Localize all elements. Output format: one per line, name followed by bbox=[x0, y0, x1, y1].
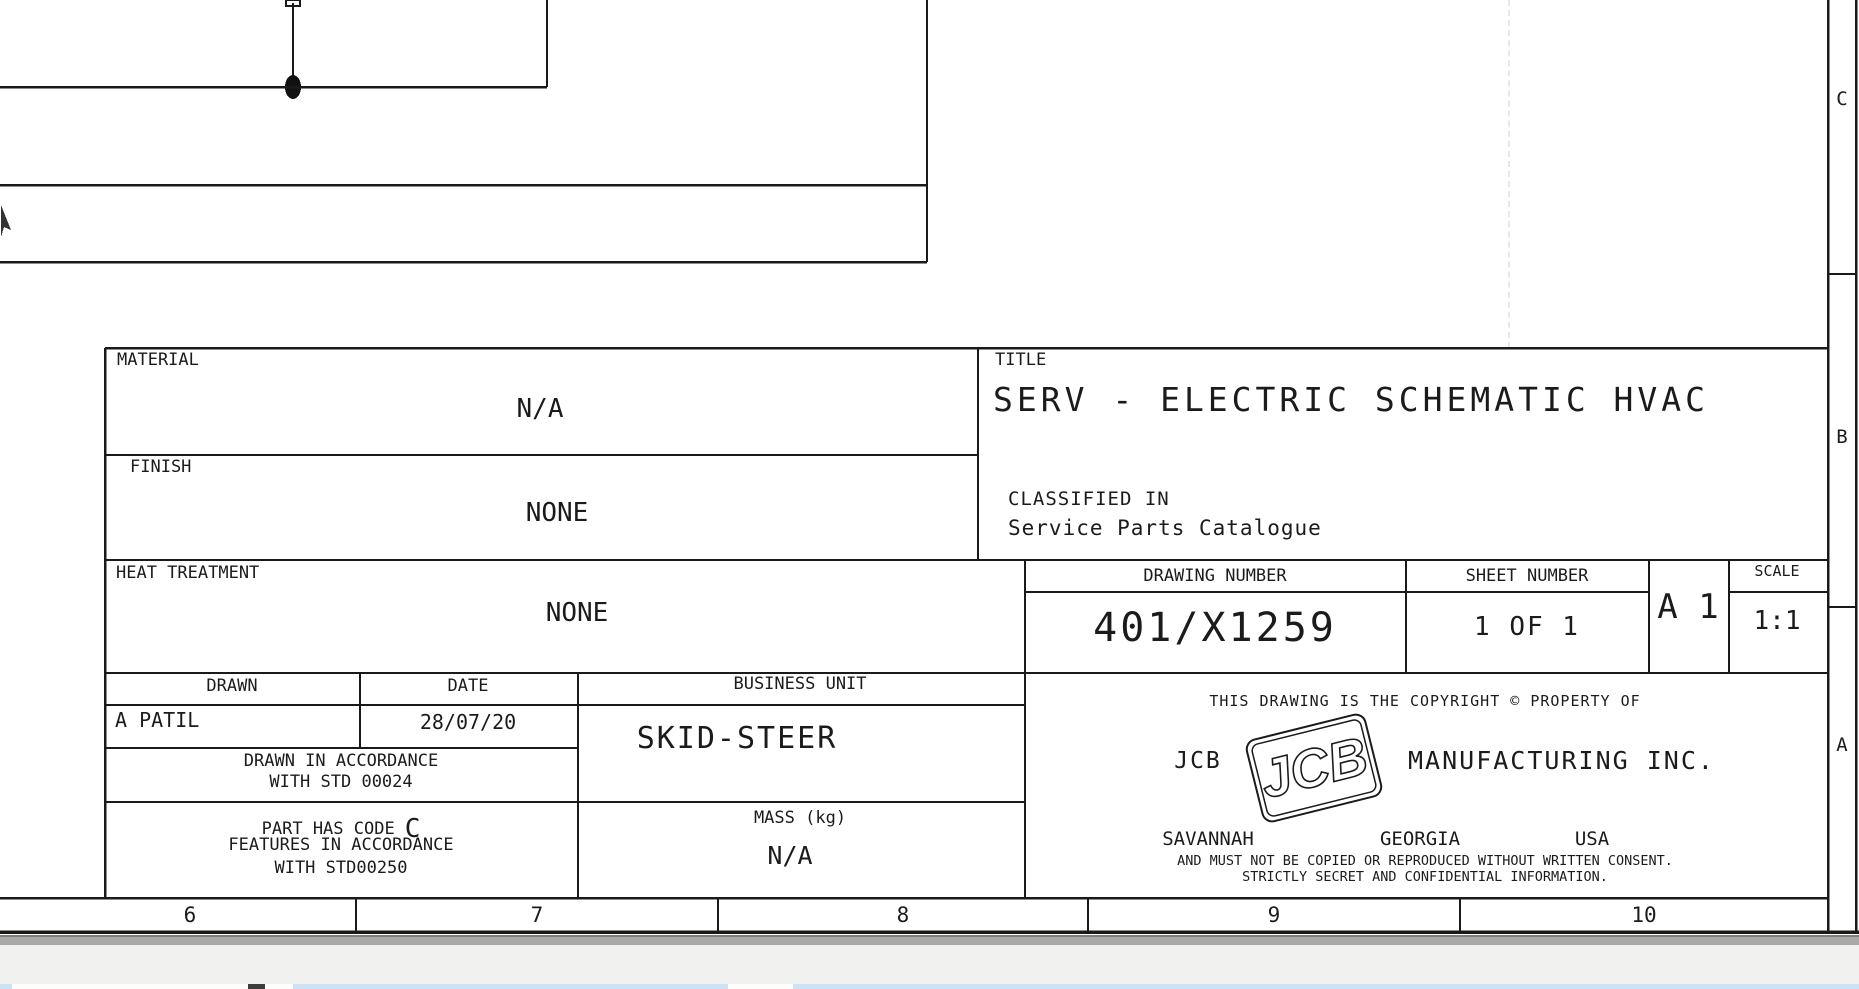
part-code-line3: WITH STD00250 bbox=[274, 860, 407, 877]
heat-treatment-label: HEAT TREATMENT bbox=[116, 565, 259, 582]
taskbar-white-segment bbox=[728, 984, 793, 989]
material-label: MATERIAL bbox=[117, 352, 199, 369]
business-unit-value: SKID-STEER bbox=[637, 724, 838, 754]
app-window: MATERIAL N/A FINISH NONE HEAT TREATMENT … bbox=[0, 0, 1859, 989]
copyright-consent: AND MUST NOT BE COPIED OR REPRODUCED WIT… bbox=[1177, 855, 1673, 869]
company-suffix: MANUFACTURING INC. bbox=[1408, 748, 1715, 773]
business-unit-label: BUSINESS UNIT bbox=[733, 676, 866, 693]
finish-value: NONE bbox=[526, 500, 589, 526]
jcb-logo: JCB bbox=[1238, 704, 1390, 832]
zone-letter: B bbox=[1836, 428, 1847, 447]
drawn-label: DRAWN bbox=[206, 678, 257, 695]
drawing-number-label: DRAWING NUMBER bbox=[1143, 568, 1286, 585]
zone-number: 9 bbox=[1268, 905, 1281, 926]
scale-label: SCALE bbox=[1754, 564, 1799, 579]
accordance-line1: DRAWN IN ACCORDANCE bbox=[244, 753, 438, 770]
mass-label: MASS (kg) bbox=[754, 810, 846, 827]
sheet-number-value: 1 OF 1 bbox=[1474, 614, 1580, 640]
zone-number: 7 bbox=[531, 905, 544, 926]
status-bar: ‹ 1 / 1 bbox=[0, 945, 1859, 984]
classified-label: CLASSIFIED IN bbox=[1008, 490, 1170, 509]
cursor-mark bbox=[1, 205, 11, 237]
zone-number: 6 bbox=[184, 905, 197, 926]
taskbar-sliver bbox=[0, 984, 1859, 989]
finish-label: FINISH bbox=[130, 459, 191, 476]
heat-treatment-value: NONE bbox=[546, 600, 609, 626]
copyright-state: GEORGIA bbox=[1380, 830, 1460, 849]
drawing-title: SERV - ELECTRIC SCHEMATIC HVAC bbox=[993, 383, 1709, 416]
part-code-line2: FEATURES IN ACCORDANCE bbox=[228, 837, 453, 854]
zone-number: 8 bbox=[897, 905, 910, 926]
date-value: 28/07/20 bbox=[420, 712, 516, 732]
mass-value: N/A bbox=[767, 843, 812, 868]
title-label: TITLE bbox=[995, 352, 1046, 369]
date-label: DATE bbox=[448, 678, 489, 695]
taskbar-mark bbox=[248, 984, 265, 989]
company-prefix: JCB bbox=[1174, 750, 1222, 773]
sheet-size: A 1 bbox=[1657, 590, 1718, 624]
sheet-number-label: SHEET NUMBER bbox=[1466, 568, 1589, 585]
pdf-page-canvas: MATERIAL N/A FINISH NONE HEAT TREATMENT … bbox=[0, 0, 1859, 935]
zone-letter: A bbox=[1836, 736, 1847, 755]
scale-value: 1:1 bbox=[1754, 608, 1801, 634]
material-value: N/A bbox=[517, 396, 564, 422]
zone-letter: C bbox=[1836, 90, 1847, 109]
classified-value: Service Parts Catalogue bbox=[1008, 518, 1322, 539]
drawing-linework bbox=[0, 0, 1859, 935]
copyright-city: SAVANNAH bbox=[1162, 830, 1254, 849]
copyright-country: USA bbox=[1575, 830, 1609, 849]
document-separator-bar bbox=[0, 935, 1859, 945]
drawn-value: A PATIL bbox=[115, 710, 199, 730]
drawing-number-value: 401/X1259 bbox=[1093, 608, 1337, 648]
copyright-secret: STRICTLY SECRET AND CONFIDENTIAL INFORMA… bbox=[1242, 871, 1608, 885]
zone-number: 10 bbox=[1631, 905, 1656, 926]
accordance-line2: WITH STD 00024 bbox=[269, 774, 412, 791]
